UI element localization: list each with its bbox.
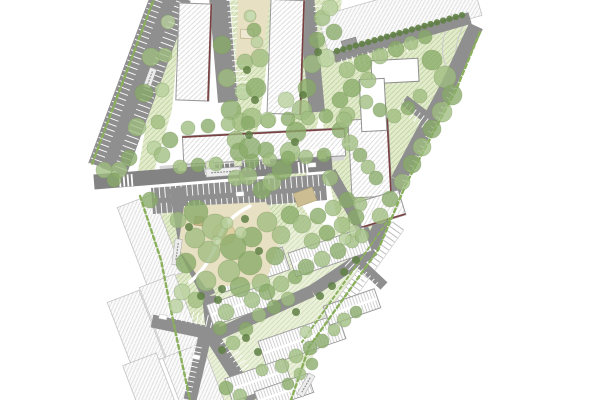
tree: [154, 147, 170, 163]
tree: [247, 23, 261, 37]
tree: [142, 48, 160, 66]
tree: [170, 212, 186, 228]
tree: [173, 160, 187, 174]
tree: [245, 154, 259, 168]
tree: [218, 304, 234, 320]
tree: [322, 0, 338, 16]
tree: [246, 78, 266, 98]
tree: [315, 334, 329, 348]
bush: [299, 91, 307, 99]
tree: [418, 30, 432, 44]
bush: [251, 96, 259, 104]
tree: [107, 173, 121, 187]
tree: [213, 321, 227, 335]
tree: [403, 155, 421, 173]
tree: [281, 292, 295, 306]
tree: [221, 217, 233, 229]
tree: [348, 209, 364, 225]
tree: [288, 270, 302, 284]
tree: [212, 236, 222, 246]
tree: [191, 158, 205, 172]
bush: [243, 66, 251, 74]
tree: [155, 83, 169, 97]
tree: [251, 36, 263, 48]
tree: [181, 121, 195, 135]
tree: [201, 119, 215, 133]
tree: [239, 322, 253, 336]
tree: [281, 151, 295, 165]
bush: [316, 292, 324, 300]
bush: [340, 268, 348, 276]
tree: [281, 112, 295, 126]
tree: [413, 89, 427, 103]
tree: [372, 208, 388, 224]
tree: [355, 229, 369, 243]
tree: [219, 381, 233, 395]
tree: [239, 167, 257, 185]
tree: [244, 10, 256, 22]
tree: [353, 197, 367, 211]
bush: [218, 346, 226, 354]
bush: [291, 138, 299, 146]
tree: [372, 48, 388, 64]
tree: [259, 284, 275, 300]
tree: [339, 233, 351, 245]
tree: [404, 36, 418, 50]
tree: [261, 114, 275, 128]
tree: [322, 170, 338, 186]
tree: [353, 148, 367, 162]
tree: [339, 192, 355, 208]
tree: [354, 54, 372, 72]
tree: [442, 85, 462, 105]
tree: [185, 228, 205, 248]
tree: [233, 389, 247, 400]
tree: [128, 118, 146, 136]
tree: [304, 233, 320, 249]
tree: [334, 217, 350, 233]
tree: [326, 24, 342, 40]
bush: [242, 334, 250, 342]
tree: [319, 109, 333, 123]
tree: [263, 153, 277, 167]
bush: [314, 48, 322, 56]
tree: [423, 120, 441, 138]
tree: [382, 191, 398, 207]
tree: [413, 138, 431, 156]
tree: [226, 336, 240, 350]
tree: [306, 358, 318, 370]
tree: [303, 341, 317, 355]
tree: [301, 111, 315, 125]
tree: [350, 306, 362, 318]
tree: [332, 92, 348, 108]
tree: [336, 112, 352, 128]
tree: [422, 50, 442, 70]
bush: [197, 292, 205, 300]
tree: [401, 101, 415, 115]
tree: [325, 200, 341, 216]
tree: [252, 308, 266, 322]
tree: [162, 132, 178, 148]
tree: [342, 135, 358, 151]
tree: [317, 148, 331, 162]
tree: [337, 313, 351, 327]
tree: [388, 41, 404, 57]
tree: [275, 359, 289, 373]
bush: [245, 131, 253, 139]
tree: [328, 324, 340, 336]
tree: [360, 72, 376, 88]
tree: [213, 36, 231, 54]
tree: [369, 171, 383, 185]
tree: [176, 253, 196, 273]
tree: [209, 157, 223, 171]
tree: [330, 243, 346, 259]
tree: [256, 364, 268, 376]
tree: [359, 95, 373, 109]
tree: [135, 84, 153, 102]
site-plan: [0, 0, 600, 400]
tree: [387, 109, 401, 123]
tree: [151, 115, 165, 129]
tree: [299, 150, 313, 164]
tree: [300, 326, 312, 338]
tree: [309, 32, 325, 48]
bush: [218, 285, 226, 293]
tree: [235, 227, 247, 239]
tree: [394, 174, 410, 190]
tree: [174, 284, 190, 300]
tree: [339, 62, 355, 78]
bush: [254, 348, 262, 356]
tree: [221, 117, 235, 131]
bush: [185, 223, 193, 231]
car: [236, 191, 244, 196]
tree: [142, 192, 158, 208]
tree: [169, 299, 183, 313]
tree: [289, 349, 303, 363]
tree: [161, 15, 175, 29]
tree: [244, 292, 260, 308]
bush: [241, 215, 249, 223]
tree: [310, 208, 326, 224]
tree: [432, 102, 452, 122]
tree: [282, 378, 294, 390]
bush: [328, 282, 336, 290]
tree: [158, 48, 172, 62]
tree: [293, 215, 311, 233]
bush: [214, 296, 222, 304]
tree: [266, 247, 284, 265]
tree: [314, 251, 330, 267]
tree: [267, 300, 281, 314]
tree: [278, 92, 294, 108]
tree: [251, 49, 269, 67]
tree: [196, 271, 216, 291]
site-plan-canvas: [0, 0, 600, 400]
tree: [319, 225, 335, 241]
tree: [294, 368, 306, 380]
tree: [241, 116, 255, 130]
tree: [272, 226, 290, 244]
tree: [373, 103, 387, 117]
bush: [255, 247, 263, 255]
tree: [273, 276, 289, 292]
hatched-building: [176, 3, 212, 101]
bush: [352, 256, 360, 264]
bush: [292, 308, 300, 316]
tree: [218, 69, 236, 87]
